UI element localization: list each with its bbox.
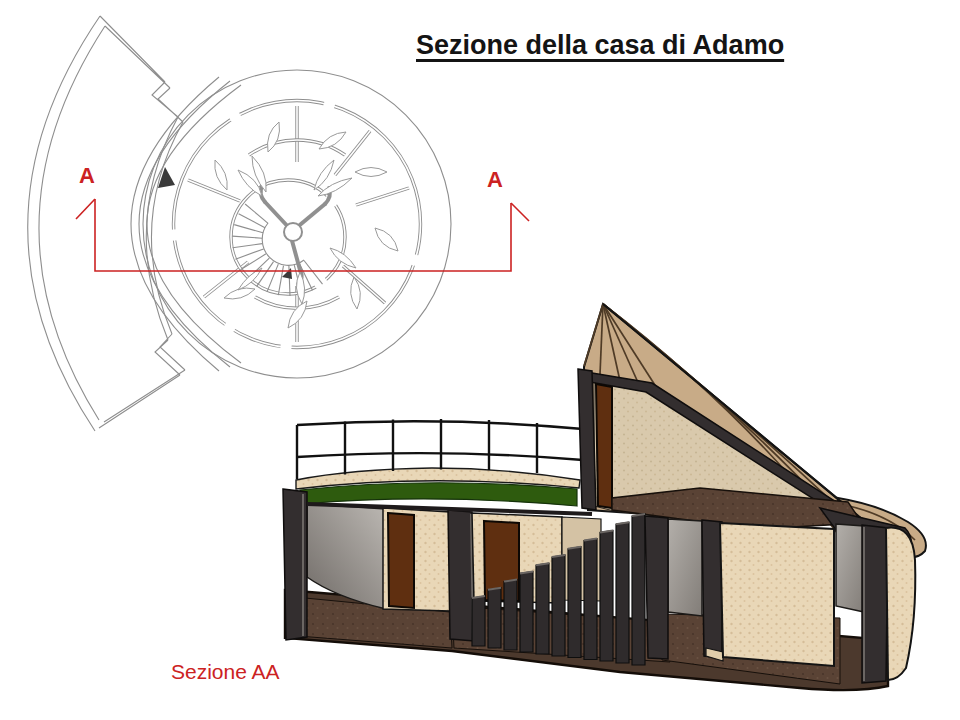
section-caption: Sezione AA <box>171 660 280 684</box>
slide-canvas <box>0 0 960 720</box>
plan-stair-arrow <box>282 268 292 279</box>
tall-tan-panel <box>720 523 834 666</box>
door-1 <box>388 513 414 608</box>
plan-door-leaves <box>215 122 398 328</box>
slide: Sezione della casa di Adamo A A Sezione … <box>0 0 960 720</box>
section-model <box>283 304 926 690</box>
back-wall-right <box>836 524 864 612</box>
cone-cut-edge <box>578 369 596 510</box>
section-marker-a-left: A <box>79 163 95 189</box>
conical-roof <box>578 304 926 557</box>
stair-side-wall <box>645 516 668 659</box>
loft-door <box>596 384 612 508</box>
slide-title: Sezione della casa di Adamo <box>416 30 784 61</box>
outer-wall-right <box>886 528 915 680</box>
green-roof <box>300 483 577 506</box>
back-wall-mid <box>668 519 702 616</box>
section-marker-a-right: A <box>487 167 503 193</box>
cut-partition-2 <box>702 520 722 658</box>
cut-partition-1 <box>448 510 474 641</box>
cut-wall-right <box>862 525 888 683</box>
floor-plan <box>28 16 451 431</box>
crescent-wall <box>28 16 241 431</box>
roof-terrace <box>296 419 583 506</box>
